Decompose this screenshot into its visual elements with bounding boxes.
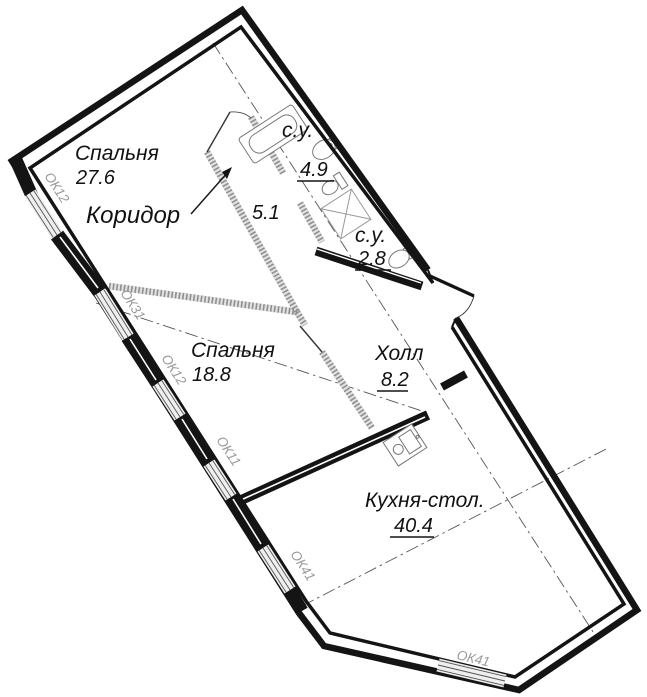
door-leaf-corridor — [207, 112, 230, 152]
room-name-corridor: Коридор — [86, 202, 180, 229]
room-area-bath-2: 2.8 — [357, 248, 386, 270]
entrance-door-arc — [456, 296, 474, 318]
room-name-hall: Холл — [374, 342, 424, 365]
room-name-bath-1: с.у. — [282, 119, 313, 142]
entrance-door-leaf — [430, 276, 474, 296]
room-area-bath-1: 4.9 — [300, 159, 328, 181]
fixtures — [238, 104, 427, 466]
door-arc-corridor — [230, 112, 251, 118]
axis-lines — [96, 43, 608, 638]
room-label-bath-2: с.у. 2.8 — [355, 224, 391, 270]
axis-line-kitchen — [302, 448, 608, 606]
room-area-kitchen: 40.4 — [394, 515, 433, 537]
room-name-kitchen: Кухня-стол. — [365, 489, 485, 512]
room-label-hall: Холл 8.2 — [374, 342, 424, 391]
room-area-hall: 8.2 — [381, 369, 409, 391]
room-label-bedroom-1: Спальня 27.6 — [75, 142, 159, 189]
room-name-bedroom-2: Спальня — [191, 339, 275, 362]
room-label-bedroom-2: Спальня 18.8 — [191, 339, 275, 386]
wall-hall-stub — [442, 374, 466, 387]
window-label-ok12a: ОК12 — [41, 169, 72, 206]
floor-plan-page: ОК12 ОК31 ОК12 ОК11 ОК41 ОК41 Спальня 27… — [0, 0, 647, 697]
entrance-door — [428, 270, 474, 327]
room-area-bedroom-1: 27.6 — [75, 167, 116, 189]
room-labels: Спальня 27.6 с.у. 4.9 Коридор 5.1 с.у. 2… — [75, 119, 485, 537]
interior-walls — [237, 251, 466, 502]
room-area-corridor: 5.1 — [252, 202, 280, 224]
room-label-corridor: Коридор 5.1 — [86, 167, 280, 229]
room-area-bedroom-2: 18.8 — [192, 364, 231, 386]
windows — [26, 191, 506, 686]
exterior-wall-outer — [12, 10, 637, 690]
door-leaf-bedroom2 — [300, 326, 322, 352]
corridor-leader-line — [191, 172, 228, 214]
room-label-kitchen: Кухня-стол. 40.4 — [365, 489, 485, 537]
room-name-bedroom-1: Спальня — [75, 142, 159, 165]
floor-plan-canvas: ОК12 ОК31 ОК12 ОК11 ОК41 ОК41 Спальня 27… — [0, 0, 647, 697]
room-name-bath-2: с.у. — [355, 224, 386, 247]
